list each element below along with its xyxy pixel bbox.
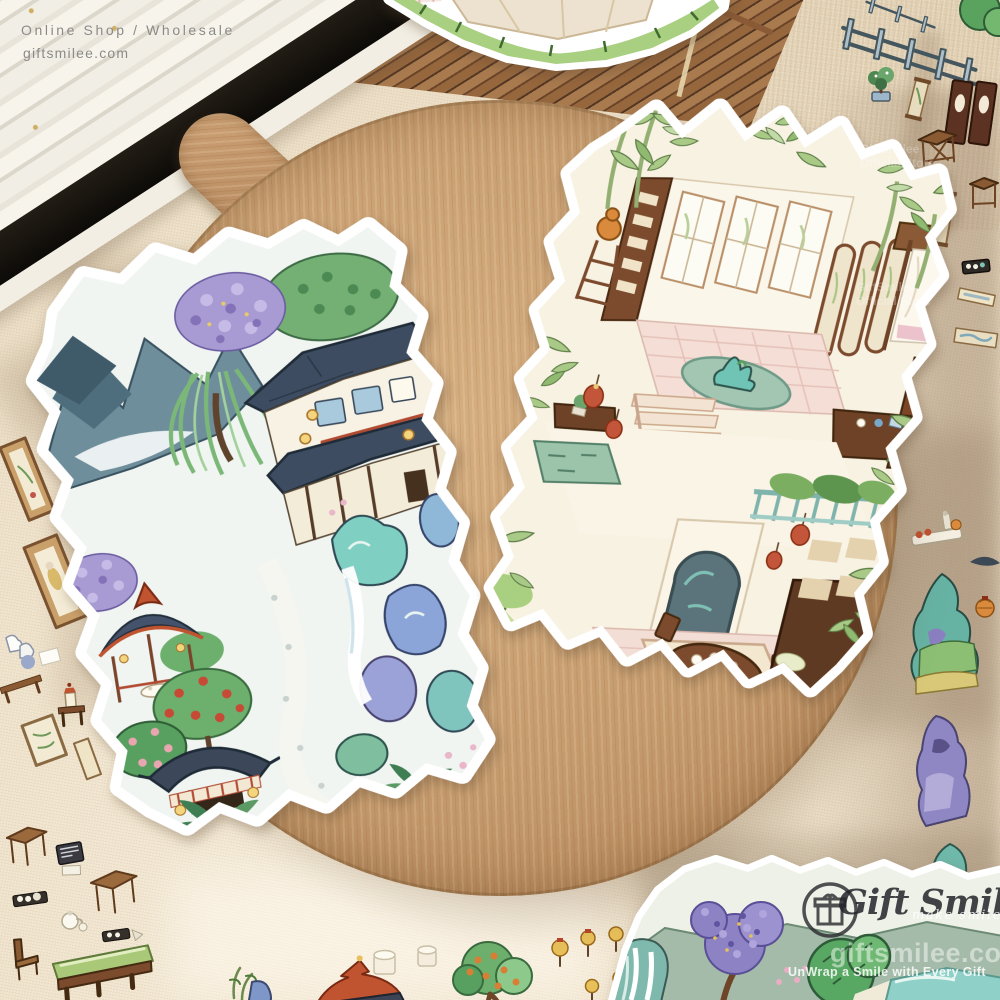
teapot-sticker	[62, 911, 87, 932]
purple-rock-sticker	[917, 716, 970, 826]
shop-header-line1: Online Shop / Wholesale	[21, 22, 235, 38]
table-sticker	[6, 826, 50, 867]
bonsai-sticker	[868, 67, 894, 101]
fence-sticker	[836, 18, 982, 90]
slogan-watermark: UnWrap a Smile with Every Gift	[788, 965, 986, 979]
fence-sticker-small	[863, 0, 938, 34]
faint-watermark: GiftSmilee Official Store	[860, 142, 935, 170]
chair-sticker	[14, 938, 39, 980]
corner-tree-sticker	[960, 0, 1000, 36]
lantern-sticker	[976, 596, 994, 617]
faint-watermark: GiftSmilee Official Store	[856, 280, 931, 308]
tea-tray-sticker-2	[102, 926, 143, 944]
crescent-sticker	[970, 557, 1000, 566]
shop-header-line2: giftsmilee.com	[23, 45, 129, 61]
tea-set-sticker	[13, 891, 48, 907]
brand-watermark-tagline: make smile	[912, 908, 1000, 923]
fruit-tree-sticker	[453, 942, 532, 1000]
bamboo-rock-sticker	[230, 968, 271, 1000]
product-photo: Online Shop / Wholesale giftsmilee.com G…	[0, 0, 1000, 1000]
paper-cup-sticker-2	[418, 946, 436, 966]
mini-lantern	[552, 938, 568, 966]
paper-cup-sticker	[374, 951, 395, 975]
mini-lantern	[586, 980, 599, 1000]
bench-sticker	[52, 945, 155, 1000]
